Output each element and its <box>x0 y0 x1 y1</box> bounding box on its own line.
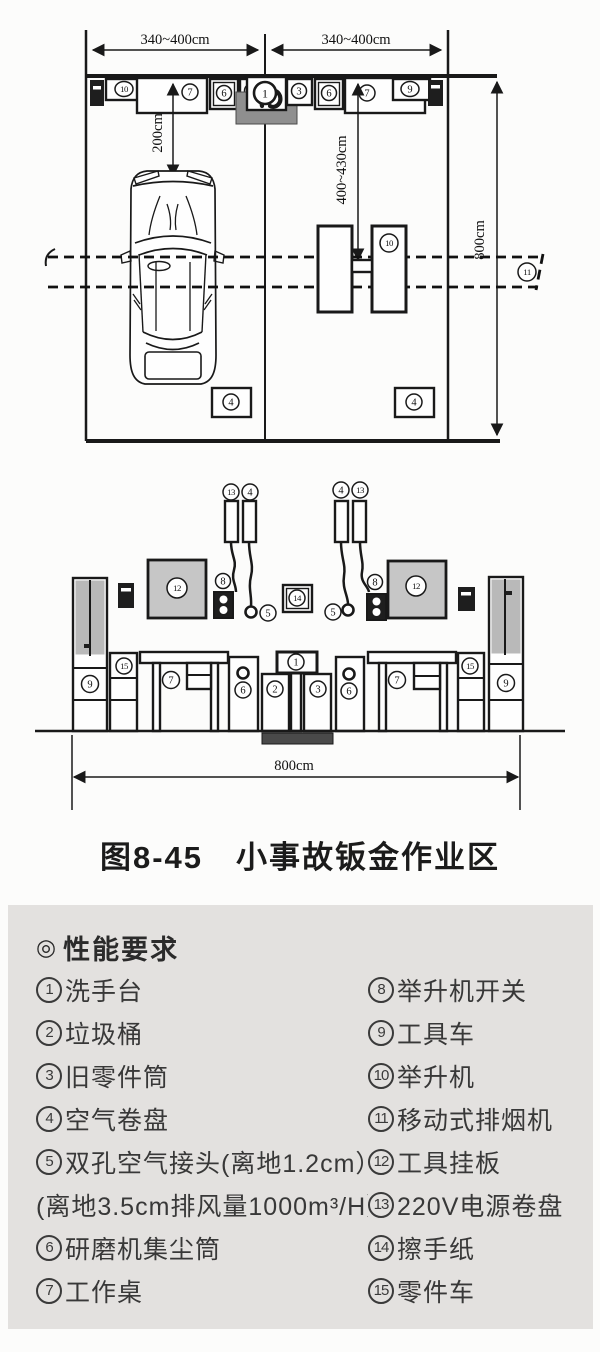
work-table-left: 7 <box>140 652 228 731</box>
plan-dimension-height: 800cm <box>472 82 497 435</box>
tool-cart-right: 9 <box>489 577 523 731</box>
old-parts-bin-elev: 3 <box>304 674 331 731</box>
legend-item: 12工具挂板 <box>368 1140 593 1183</box>
label-tool-cart-right: 9 <box>503 679 508 690</box>
power-box-right <box>428 80 443 106</box>
work-table-right: 7 <box>368 652 456 731</box>
legend-column-right: 8举升机开关 9工具车 10举升机 11移动式排烟机 12工具挂板 13220V… <box>368 968 593 1312</box>
item-label: 旧零件筒 <box>65 1058 169 1094</box>
plan-view: 340~400cm 340~400cm 800cm 10 7 <box>46 30 543 441</box>
label-air-conn-left: 5 <box>265 609 270 620</box>
item-number: 3 <box>36 1063 62 1089</box>
item-label: 研磨机集尘筒 <box>65 1230 221 1266</box>
item-number: 9 <box>368 1020 394 1046</box>
air-connector-right: 5 <box>325 604 354 620</box>
item-number: 13 <box>368 1192 394 1218</box>
legend-item: 6研磨机集尘筒 <box>36 1226 368 1269</box>
label-dust-right: 6 <box>326 89 331 100</box>
label-lift-switch-right: 8 <box>372 578 377 589</box>
label-dust-left-elev: 6 <box>240 686 245 697</box>
label-tool-board-right: 12 <box>412 581 420 591</box>
item-number: 10 <box>368 1063 394 1089</box>
item-number: 14 <box>368 1235 394 1261</box>
item-label: 工作桌 <box>65 1273 143 1309</box>
legend-columns: 1洗手台 2垃圾桶 3旧零件筒 4空气卷盘 5双孔空气接头(离地1.2cm） (… <box>36 968 593 1312</box>
item-label: 工具车 <box>397 1015 475 1051</box>
lift-plan: 10 <box>318 226 406 312</box>
label-paper-towel: 14 <box>293 593 302 603</box>
legend-item-continuation: (离地3.5cm排风量1000m³/H） <box>36 1183 368 1226</box>
label-lift: 10 <box>385 238 394 248</box>
item-label: 双孔空气接头(离地1.2cm） <box>65 1144 368 1180</box>
item-number: 5 <box>36 1149 62 1175</box>
air-hose-right <box>341 542 348 604</box>
air-connector-left: 5 <box>246 605 277 621</box>
plan-wall-equipment: 10 7 6 2 1 <box>90 77 443 124</box>
label-air-reel-right: 4 <box>411 398 417 409</box>
tool-board-left: 12 <box>148 560 206 618</box>
label-parts-cart-right: 15 <box>466 661 475 671</box>
plan-dimension-top-left: 340~400cm <box>93 32 258 50</box>
car-top-view <box>121 171 224 384</box>
dim-top-left-label: 340~400cm <box>140 32 210 48</box>
legend-header: ◎性能要求 <box>36 929 593 965</box>
label-tool-cart-left: 9 <box>87 680 92 691</box>
paper-towel-dispenser: 14 <box>283 585 312 612</box>
label-lift-switch-left: 8 <box>220 577 225 588</box>
lift-switch-left: 8 <box>214 574 233 619</box>
lift-switch-right: 8 <box>367 575 386 621</box>
legend-title: 性能要求 <box>63 928 179 967</box>
legend-item: 11移动式排烟机 <box>368 1097 593 1140</box>
dim-car-label: 200cm <box>150 113 166 153</box>
label-table-right: 7 <box>394 676 399 687</box>
legend-item: 5双孔空气接头(离地1.2cm） <box>36 1140 368 1183</box>
item-label: 220V电源卷盘 <box>397 1187 563 1223</box>
air-reel-left-plan: 4 <box>212 388 251 417</box>
parts-cart-right: 15 <box>458 653 484 731</box>
item-number: 7 <box>36 1278 62 1304</box>
label-tool-board-left: 12 <box>173 583 181 593</box>
label-workbench-left: 7 <box>187 88 192 99</box>
label-table-left: 7 <box>168 676 173 687</box>
label-dust-right-elev: 6 <box>346 687 351 698</box>
wall-unit-left <box>118 583 134 608</box>
dim-width-label: 800cm <box>274 758 314 774</box>
item-number: 2 <box>36 1020 62 1046</box>
legend-item: 13220V电源卷盘 <box>368 1183 593 1226</box>
label-wall-box-9: 9 <box>407 85 412 96</box>
item-label: (离地3.5cm排风量1000m³/H） <box>36 1187 368 1223</box>
label-air-conn-right: 5 <box>330 608 335 619</box>
label-parts-bin-elev: 3 <box>315 685 320 696</box>
trash-can-elev: 2 <box>262 674 289 731</box>
dim-lift-label: 400~430cm <box>334 135 350 205</box>
item-number: 12 <box>368 1149 394 1175</box>
workshop-diagrams: 340~400cm 340~400cm 800cm 10 7 <box>0 0 600 820</box>
elevation-dimension-width: 800cm <box>72 735 520 810</box>
item-label: 空气卷盘 <box>65 1101 169 1137</box>
parts-cart-left: 15 <box>110 653 137 731</box>
item-label: 垃圾桶 <box>65 1015 143 1051</box>
legend-item: 8举升机开关 <box>368 968 593 1011</box>
legend-item: 7工作桌 <box>36 1269 368 1312</box>
legend-item: 14擦手纸 <box>368 1226 593 1269</box>
item-label: 擦手纸 <box>397 1230 475 1266</box>
label-parts-bin: 3 <box>296 87 301 98</box>
label-power-reel-left: 13 <box>227 487 236 497</box>
double-circle-bullet-icon: ◎ <box>36 934 58 961</box>
legend-item: 15零件车 <box>368 1269 593 1312</box>
legend-item: 3旧零件筒 <box>36 1054 368 1097</box>
label-smoke-rail: 11 <box>523 267 531 277</box>
label-dust-left: 6 <box>221 89 226 100</box>
air-reel-right-plan: 4 <box>395 388 434 417</box>
dim-top-right-label: 340~400cm <box>321 32 391 48</box>
label-basin-elev: 1 <box>293 658 298 669</box>
label-workbench-right: 7 <box>364 89 369 100</box>
legend-item: 2垃圾桶 <box>36 1011 368 1054</box>
power-box-left <box>90 80 104 106</box>
item-number: 15 <box>368 1278 394 1304</box>
legend-item: 4空气卷盘 <box>36 1097 368 1140</box>
dim-height-label: 800cm <box>472 220 488 260</box>
legend-item: 1洗手台 <box>36 968 368 1011</box>
figure-caption: 图8-45 小事故钣金作业区 <box>0 832 600 877</box>
legend-item: 9工具车 <box>368 1011 593 1054</box>
label-parts-cart-left: 15 <box>120 661 129 671</box>
item-label: 零件车 <box>397 1273 475 1309</box>
smoke-extractor-rail: 11 <box>46 249 543 290</box>
label-trash-elev: 2 <box>272 685 277 696</box>
item-label: 工具挂板 <box>397 1144 501 1180</box>
dust-collector-left-elev: 6 <box>229 657 258 731</box>
item-number: 8 <box>368 977 394 1003</box>
tool-cart-left: 9 <box>73 578 107 731</box>
plan-dimension-top-right: 340~400cm <box>272 32 441 50</box>
floor-mat <box>262 733 333 744</box>
item-label: 移动式排烟机 <box>397 1101 553 1137</box>
item-label: 举升机开关 <box>397 972 527 1008</box>
legend-item: 10举升机 <box>368 1054 593 1097</box>
item-number: 6 <box>36 1235 62 1261</box>
book-page: 340~400cm 340~400cm 800cm 10 7 <box>0 0 600 1352</box>
ceiling-reels-left: 13 4 <box>223 484 258 606</box>
tool-board-right: 12 <box>388 561 446 618</box>
label-air-reel-left-elev: 4 <box>247 488 253 499</box>
item-label: 洗手台 <box>65 972 143 1008</box>
label-power-reel-right: 13 <box>356 485 365 495</box>
air-hose-left <box>249 542 252 606</box>
elevation-view: 13 4 4 13 <box>35 482 565 810</box>
wall-unit-right <box>458 587 475 611</box>
label-air-reel-left: 4 <box>228 398 234 409</box>
label-wall-box-10: 10 <box>120 84 129 94</box>
dust-collector-right-elev: 6 <box>336 657 364 731</box>
power-cable-left <box>231 542 236 592</box>
item-number: 11 <box>368 1106 394 1132</box>
legend-panel: ◎性能要求 1洗手台 2垃圾桶 3旧零件筒 4空气卷盘 5双孔空气接头(离地1.… <box>8 905 593 1329</box>
item-number: 4 <box>36 1106 62 1132</box>
legend-column-left: 1洗手台 2垃圾桶 3旧零件筒 4空气卷盘 5双孔空气接头(离地1.2cm） (… <box>36 968 368 1312</box>
label-basin: 1 <box>262 87 268 101</box>
label-air-reel-right-elev: 4 <box>338 486 344 497</box>
ceiling-reels-right: 4 13 <box>333 482 369 604</box>
item-label: 举升机 <box>397 1058 475 1094</box>
item-number: 1 <box>36 977 62 1003</box>
